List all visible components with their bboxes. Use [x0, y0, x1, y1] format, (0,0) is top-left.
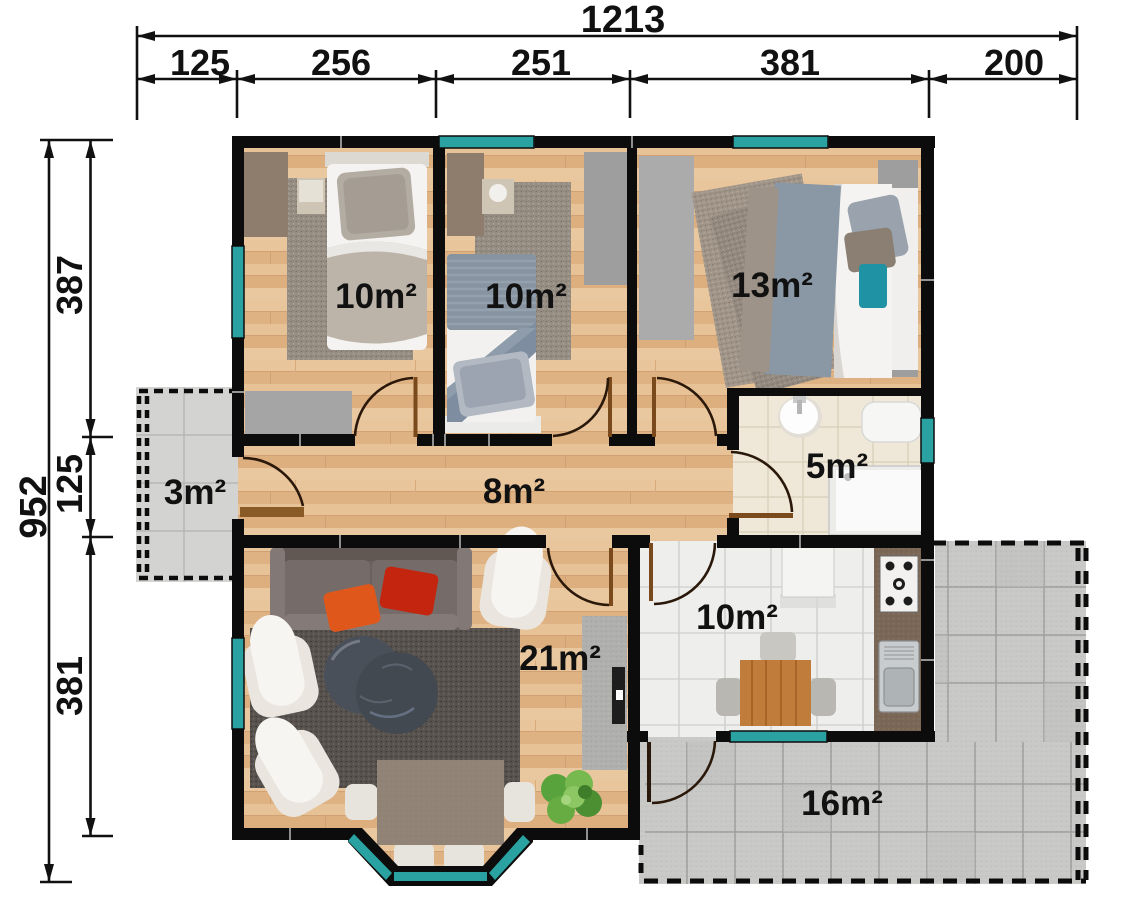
svg-text:21m²: 21m²	[519, 639, 601, 678]
svg-text:125: 125	[49, 454, 90, 514]
svg-text:387: 387	[49, 255, 90, 315]
svg-text:381: 381	[760, 42, 820, 83]
svg-text:200: 200	[984, 42, 1044, 83]
svg-text:5m²: 5m²	[806, 447, 868, 486]
svg-text:8m²: 8m²	[483, 472, 545, 511]
svg-text:251: 251	[511, 42, 571, 83]
svg-text:125: 125	[170, 42, 230, 83]
svg-text:10m²: 10m²	[696, 598, 778, 637]
svg-text:16m²: 16m²	[801, 784, 883, 823]
svg-text:256: 256	[311, 42, 371, 83]
svg-text:1213: 1213	[581, 0, 666, 41]
svg-text:381: 381	[49, 656, 90, 716]
svg-text:10m²: 10m²	[335, 277, 417, 316]
svg-text:13m²: 13m²	[731, 266, 813, 305]
svg-text:3m²: 3m²	[164, 473, 226, 512]
svg-text:10m²: 10m²	[485, 277, 567, 316]
